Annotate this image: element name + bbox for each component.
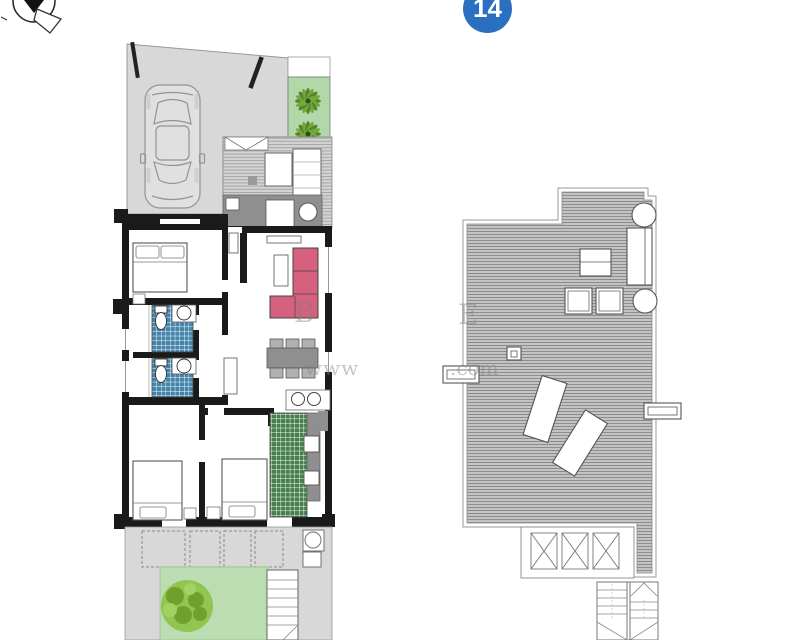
nightstand: [184, 508, 196, 519]
chair: [286, 368, 299, 378]
bathroom-1: [133, 305, 196, 352]
pillow: [161, 246, 184, 258]
round-table: [632, 203, 656, 227]
car-top-view-icon: [141, 85, 205, 208]
entrance-deck: [223, 137, 332, 228]
bathroom-2: [133, 358, 196, 397]
dining-set: [267, 339, 318, 378]
bench-lounger: [627, 228, 652, 285]
nightstand: [133, 294, 145, 304]
garden-stairs: [267, 570, 298, 640]
skylights: [521, 527, 634, 578]
floorplan-page: 14: [0, 0, 800, 640]
chair: [270, 368, 283, 378]
nightstand: [207, 507, 220, 519]
appliance: [304, 436, 319, 452]
sink: [177, 359, 191, 373]
garden-bush-icon: [161, 580, 213, 632]
pillow: [136, 246, 159, 258]
chair: [302, 368, 315, 378]
chair: [270, 339, 283, 349]
coffee-table: [274, 255, 288, 286]
pillow: [229, 506, 255, 517]
floor-plans-svg: [0, 0, 800, 640]
garden: [125, 527, 332, 640]
sink-bowl: [308, 393, 321, 406]
toilet: [155, 359, 167, 366]
sideboard: [267, 236, 301, 243]
roof-terrace-plan: [443, 188, 681, 640]
round-table: [633, 289, 657, 313]
sink-bowl: [292, 393, 305, 406]
pillow: [140, 507, 166, 518]
table: [580, 249, 611, 276]
sink: [177, 306, 191, 320]
toilet: [155, 306, 167, 313]
chair: [302, 339, 315, 349]
chair: [286, 339, 299, 349]
dining-table: [267, 348, 318, 368]
ground-floor-plan: [113, 42, 335, 640]
appliance: [304, 471, 319, 485]
terrace-stairs: [597, 582, 658, 640]
